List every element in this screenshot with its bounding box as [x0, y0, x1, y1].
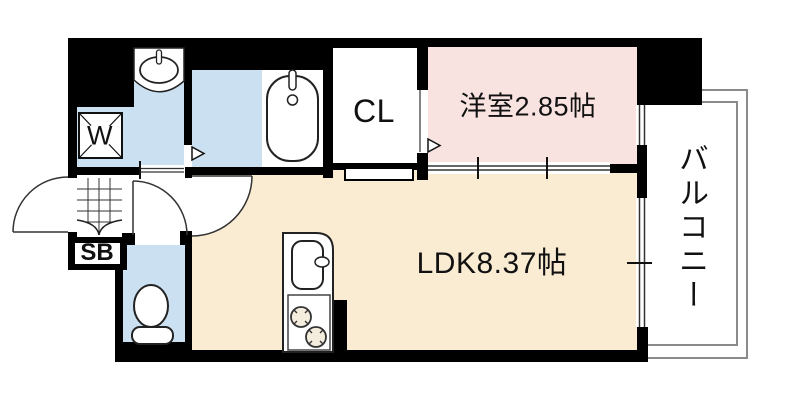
closet-sliding-door: [345, 168, 413, 180]
kitchen-counter-icon: [283, 233, 333, 352]
floor-plan: LDK8.37帖 洋室2.85帖 CL W SB バルコニー: [0, 0, 800, 414]
western-room-window: [636, 105, 648, 145]
vanity-faucet-icon: [157, 50, 162, 64]
entrance-door: [13, 177, 68, 232]
entrance-tiles: [77, 178, 122, 237]
bath-drain-icon: [288, 95, 298, 105]
vanity-sink-icon: [134, 48, 184, 92]
shoe-box-label: SB: [80, 241, 113, 265]
bathtub-icon: [267, 70, 318, 161]
balcony-label: バルコニー: [675, 143, 705, 313]
toilet-door: [133, 181, 187, 235]
bath-faucet-icon: [289, 70, 296, 90]
ldk-floor: [192, 170, 637, 352]
hinged-doors: [13, 176, 252, 236]
closet-label: CL: [353, 95, 395, 127]
western-room-label: 洋室2.85帖: [459, 94, 596, 121]
ldk-room-label: LDK8.37帖: [417, 249, 568, 279]
kitchen-faucet-icon: [315, 257, 329, 267]
stove-icon: [288, 295, 330, 350]
washing-machine-label: W: [87, 123, 113, 150]
